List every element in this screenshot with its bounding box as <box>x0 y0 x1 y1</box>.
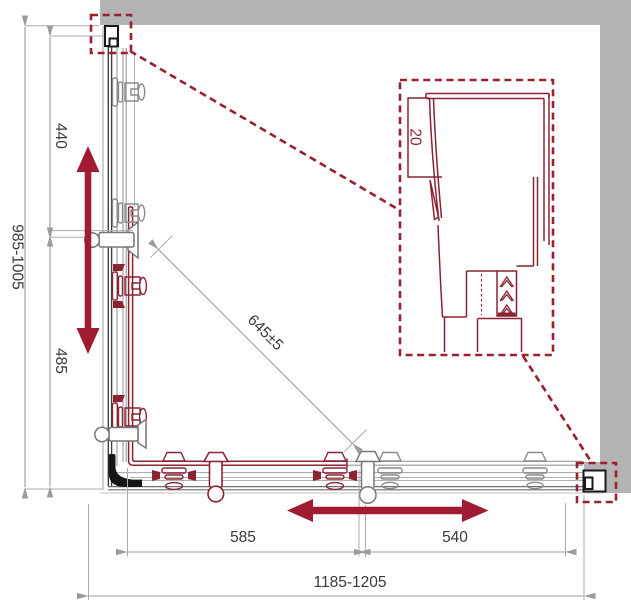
detail-view-box <box>400 80 553 355</box>
label-height-range: 985-1005 <box>9 224 26 290</box>
leader-line-bottom <box>523 356 592 463</box>
wall-bracket-top-left <box>105 26 118 47</box>
sliding-door-bottom-panel <box>133 459 347 469</box>
technical-drawing: 985-1005 440 485 645±5 585 540 1185-1205 <box>0 0 631 600</box>
top-wall <box>100 0 631 25</box>
vertical-slide-arrow-icon <box>77 146 100 354</box>
roller-red-left <box>152 453 196 490</box>
side-wall <box>600 25 631 493</box>
detail-view-profile <box>408 94 549 353</box>
leader-line-top <box>130 51 401 211</box>
wall-surfaces <box>100 0 631 493</box>
roller-red-mid <box>113 264 147 308</box>
corner-floor-bracket <box>109 454 143 487</box>
label-profile-detail: 20 <box>407 128 424 146</box>
roller-red-right <box>313 453 357 490</box>
wall-profile-bottom-right <box>584 471 606 492</box>
roller-gray-right1 <box>378 453 402 489</box>
adjustment-screw-chevrons <box>500 277 514 315</box>
dim-line-diagonal <box>159 250 353 444</box>
label-width-range: 1185-1205 <box>314 574 387 591</box>
label-door-width: 585 <box>230 529 256 546</box>
roller-gray-right2 <box>523 453 547 489</box>
label-lower-panel: 485 <box>52 348 69 374</box>
label-fixed-width: 540 <box>442 529 468 546</box>
label-diagonal-entry: 645±5 <box>244 312 286 354</box>
roller-gray-top <box>113 78 145 106</box>
label-upper-panel: 440 <box>52 123 69 149</box>
horizontal-slide-arrow-icon <box>287 499 489 522</box>
